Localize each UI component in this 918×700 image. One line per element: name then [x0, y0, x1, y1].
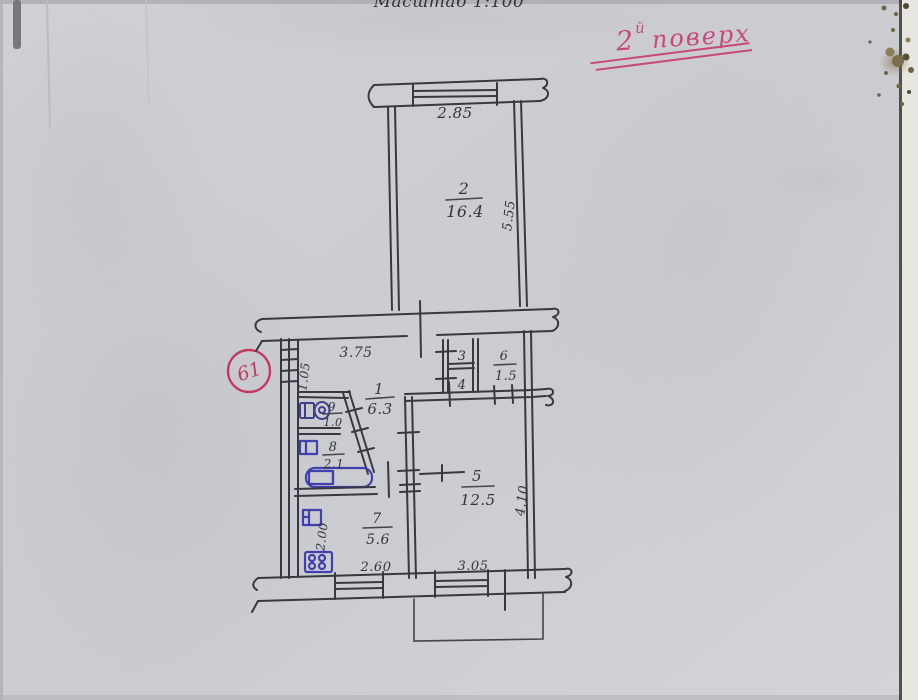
- floor-plan-scan: Масштаб 1:100 2 й поверх 61: [0, 0, 918, 700]
- door-opening-tick: [420, 301, 421, 357]
- room2-area: 16.4: [446, 202, 484, 221]
- fraction-bar: [462, 486, 494, 487]
- photo-edge-strip: [902, 0, 918, 700]
- room5-area: 12.5: [460, 491, 495, 509]
- room5-number: 5: [472, 467, 482, 485]
- hall-number: 1: [374, 380, 384, 398]
- bath-number: 8: [329, 440, 338, 455]
- dim-room2-width: 2.85: [436, 104, 472, 122]
- floor-label-number: 2: [614, 25, 634, 57]
- room2-number: 2: [458, 179, 470, 198]
- fraction-bar: [323, 413, 342, 414]
- fraction-bar: [363, 527, 392, 528]
- kitchen-area: 5.6: [366, 532, 390, 548]
- bath-area: 2.1: [323, 457, 345, 471]
- room6-area: 1.5: [495, 369, 517, 384]
- dim-hall-width: 3.75: [339, 345, 372, 361]
- room6-number: 6: [500, 349, 509, 364]
- dim-room5-window: 3.05: [458, 559, 489, 574]
- photo-artifact-mark: [13, 0, 21, 49]
- toilet-area: 1.0: [324, 416, 343, 429]
- toilet-number: 9: [328, 400, 336, 414]
- closet4-number: 4: [457, 378, 467, 393]
- kitchen-door-tick: [388, 462, 389, 497]
- closet3-number: 3: [458, 349, 467, 364]
- hall-area: 6.3: [367, 400, 392, 418]
- kitchen-number: 7: [372, 511, 381, 527]
- dim-kitchen-window: 2.60: [360, 560, 392, 575]
- floor-plan-svg: Масштаб 1:100 2 й поверх 61: [0, 0, 918, 700]
- fraction-bar: [494, 364, 516, 365]
- floor-label-suffix: й: [634, 18, 645, 37]
- scale-caption: Масштаб 1:100: [373, 0, 525, 12]
- fraction-bar: [323, 454, 344, 455]
